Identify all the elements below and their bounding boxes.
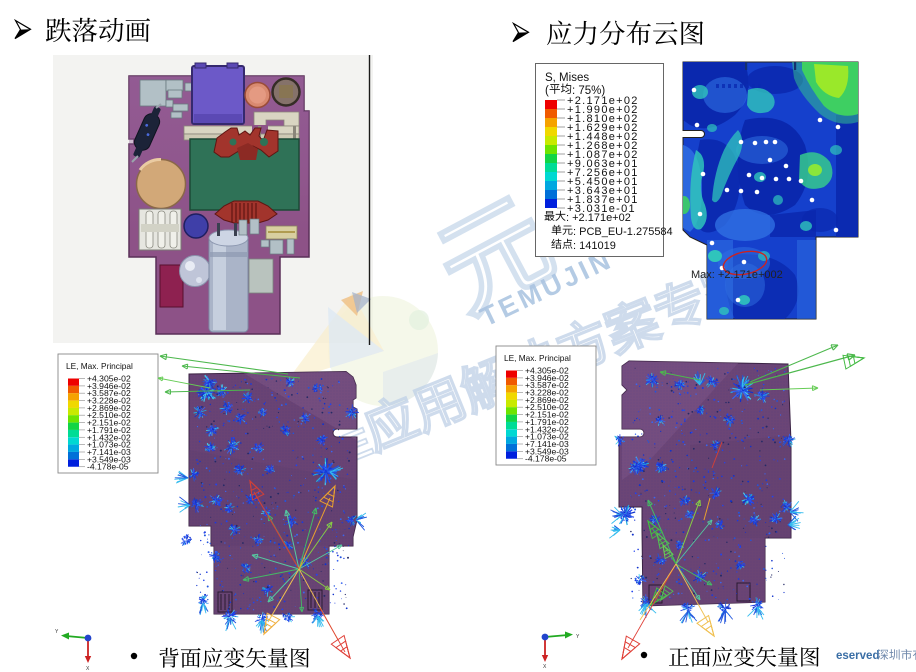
svg-text:eserved: eserved <box>836 650 879 662</box>
svg-text:: PCB_EU-1.275584: : PCB_EU-1.275584 <box>573 226 673 238</box>
svg-text:Max: +2.171e+002: Max: +2.171e+002 <box>691 269 783 281</box>
svg-text:S, Mises: S, Mises <box>545 72 589 84</box>
svg-text:: +2.171e+02: : +2.171e+02 <box>566 212 631 224</box>
svg-text:LE, Max. Principal: LE, Max. Principal <box>504 353 571 363</box>
svg-text:-4.178e-05: -4.178e-05 <box>525 454 567 464</box>
svg-text:(: ( <box>545 85 549 97</box>
svg-text:LE, Max. Principal: LE, Max. Principal <box>66 361 133 371</box>
svg-text:-4.178e-05: -4.178e-05 <box>87 462 129 472</box>
svg-text:: 141019: : 141019 <box>573 240 616 252</box>
